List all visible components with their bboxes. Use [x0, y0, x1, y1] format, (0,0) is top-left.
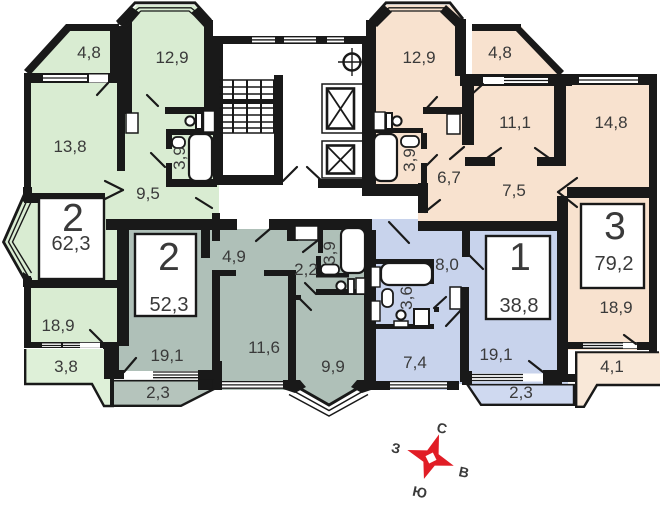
svg-text:4,1: 4,1: [600, 357, 624, 376]
svg-text:2,3: 2,3: [146, 383, 170, 402]
svg-text:2: 2: [158, 236, 180, 279]
svg-text:2,2: 2,2: [294, 260, 318, 279]
svg-text:7,4: 7,4: [403, 353, 427, 372]
svg-text:6,7: 6,7: [437, 168, 461, 187]
svg-text:11,6: 11,6: [248, 338, 280, 357]
svg-text:1: 1: [509, 236, 531, 279]
svg-text:3: 3: [604, 205, 626, 248]
svg-text:4,9: 4,9: [222, 247, 246, 266]
svg-text:3,8: 3,8: [54, 357, 78, 376]
svg-text:18,9: 18,9: [599, 298, 632, 317]
svg-text:7,5: 7,5: [502, 181, 526, 200]
svg-text:8,0: 8,0: [435, 255, 459, 274]
svg-text:13,8: 13,8: [53, 137, 86, 156]
svg-text:12,9: 12,9: [155, 48, 188, 67]
svg-text:2,3: 2,3: [509, 383, 533, 402]
svg-text:11,1: 11,1: [499, 113, 531, 132]
svg-text:18,9: 18,9: [41, 316, 74, 335]
svg-text:9,9: 9,9: [321, 357, 345, 376]
svg-text:4,8: 4,8: [77, 43, 101, 62]
svg-text:3,9: 3,9: [400, 148, 419, 172]
svg-text:19,1: 19,1: [479, 345, 512, 364]
svg-text:14,8: 14,8: [594, 113, 627, 132]
svg-text:52,3: 52,3: [150, 294, 189, 316]
svg-text:79,2: 79,2: [595, 253, 634, 275]
svg-text:12,9: 12,9: [402, 48, 435, 67]
svg-text:3,6: 3,6: [397, 286, 416, 310]
svg-text:19,1: 19,1: [150, 346, 183, 365]
svg-text:38,8: 38,8: [500, 295, 539, 317]
svg-text:3,9: 3,9: [320, 241, 339, 265]
svg-text:3,9: 3,9: [170, 146, 189, 170]
svg-text:4,8: 4,8: [488, 43, 512, 62]
svg-text:9,5: 9,5: [136, 184, 160, 203]
svg-text:62,3: 62,3: [52, 233, 91, 255]
